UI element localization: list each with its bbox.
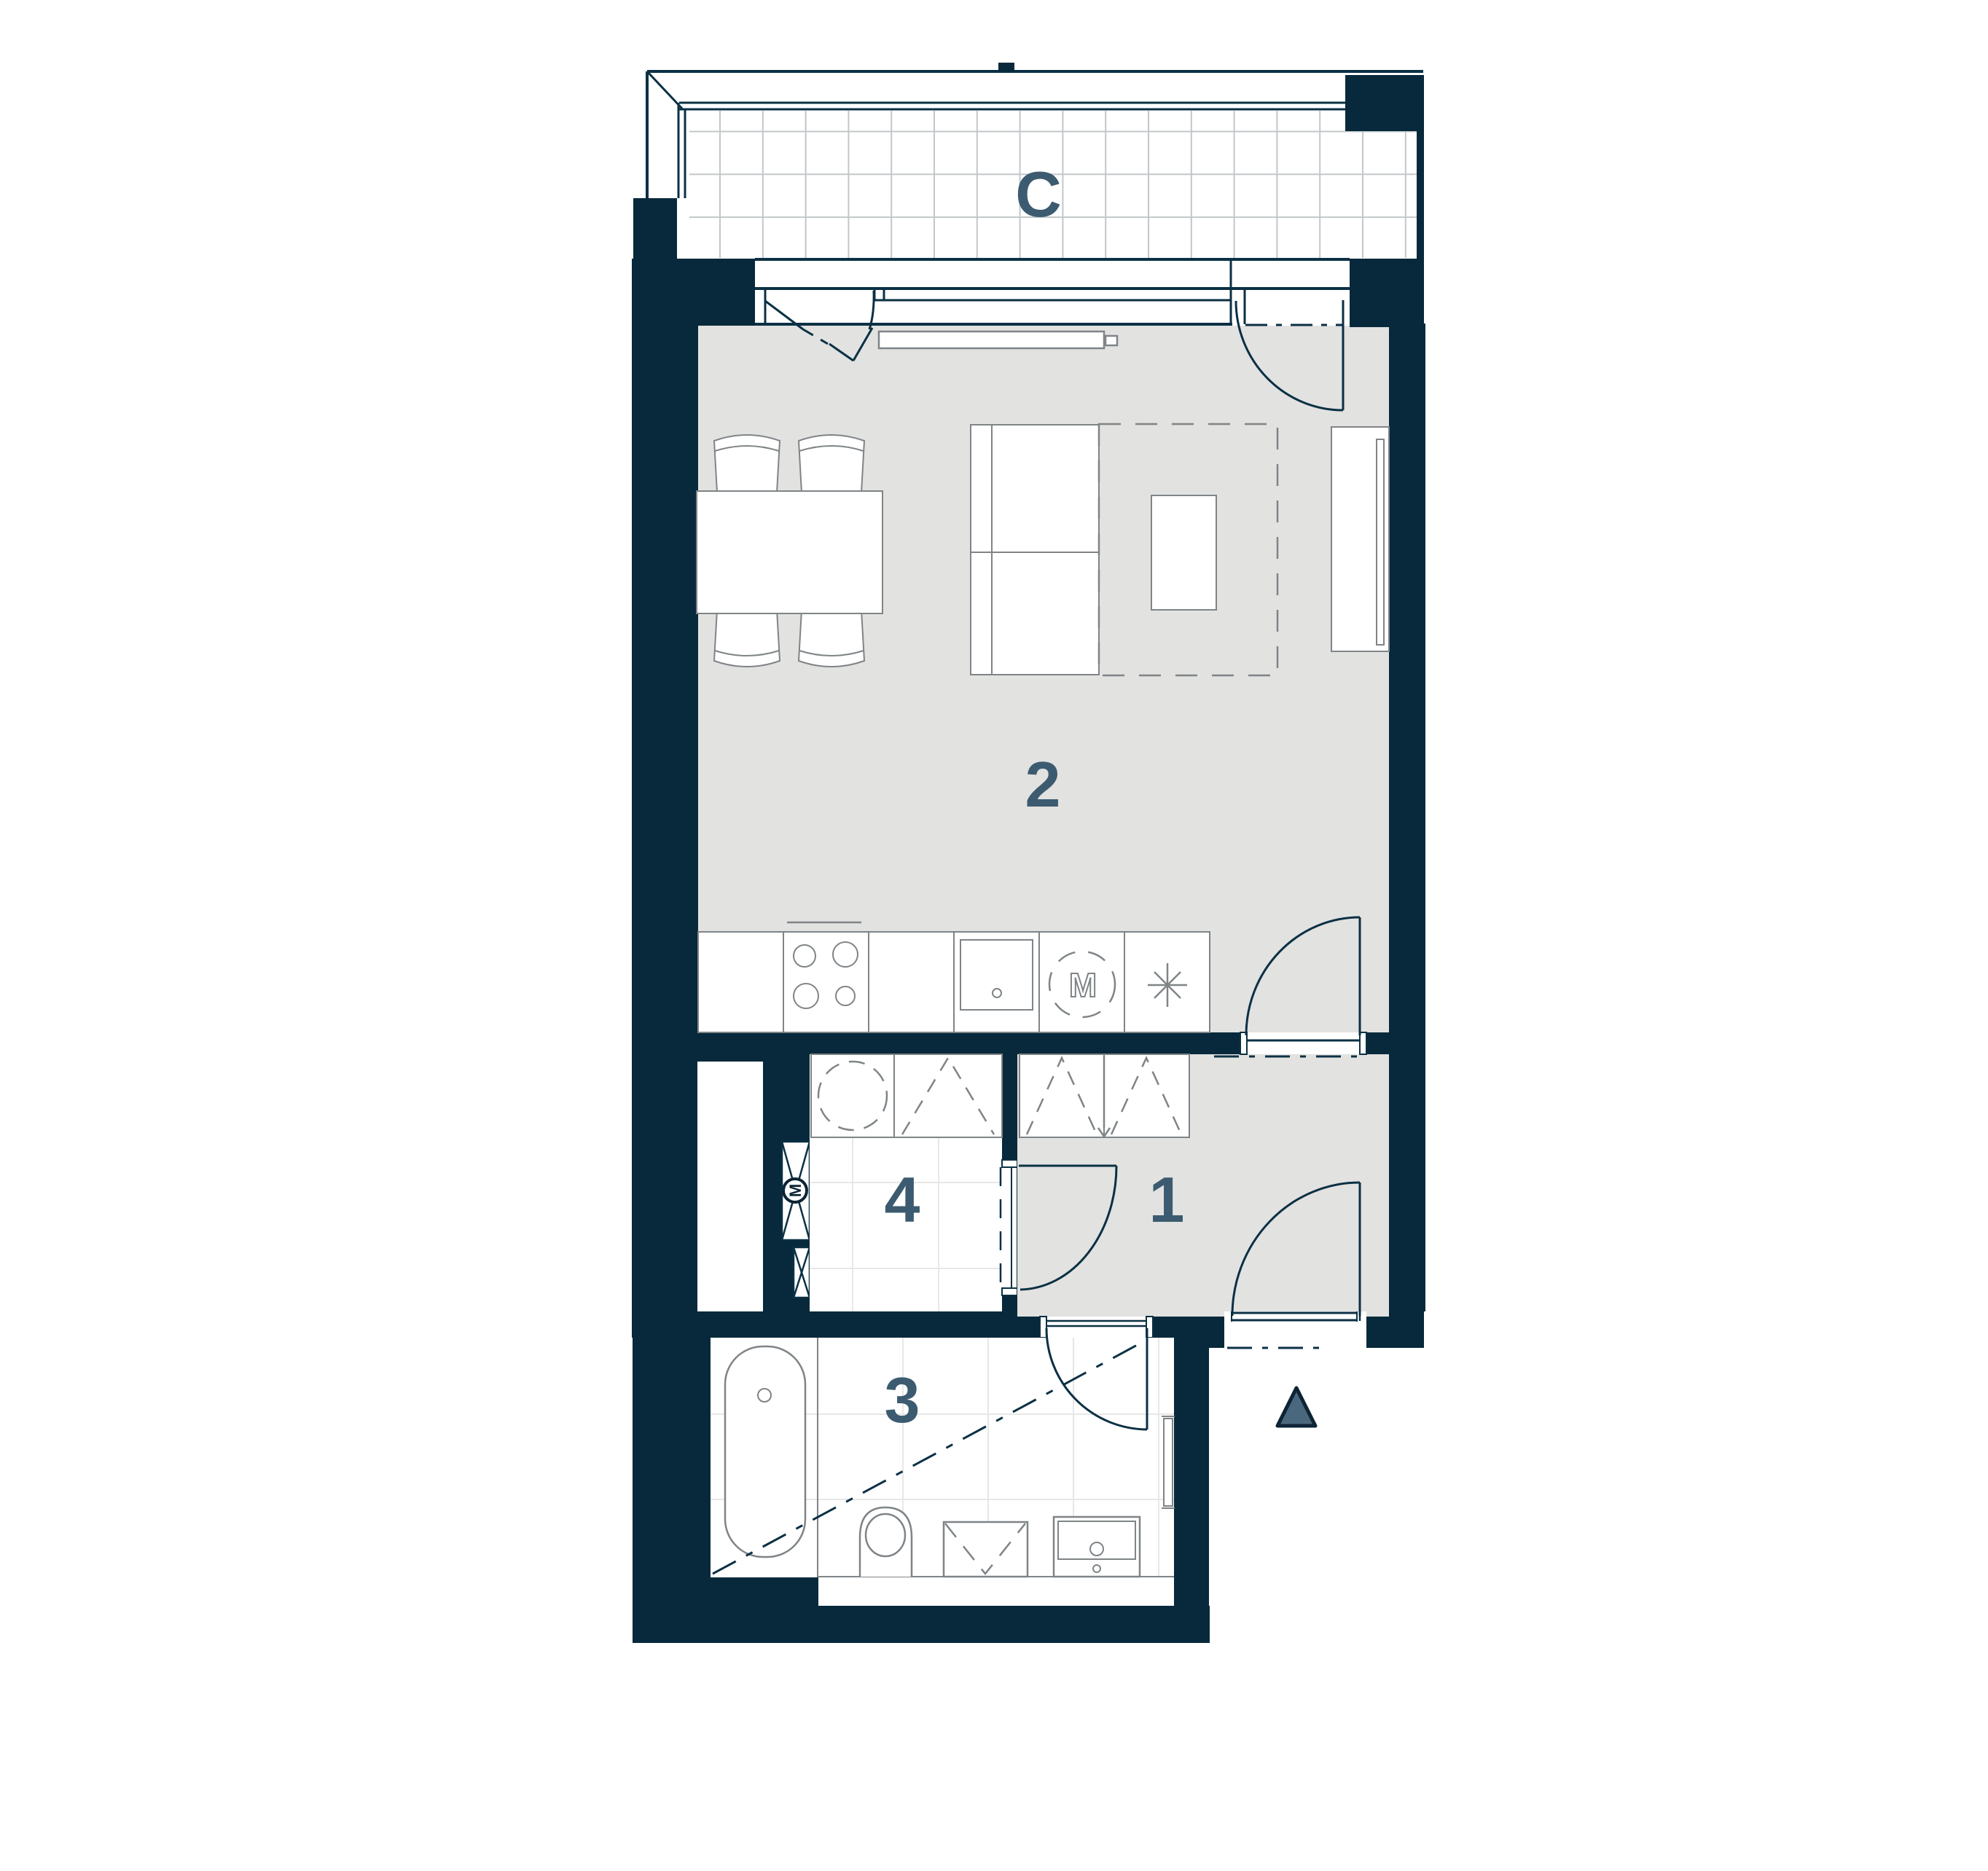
svg-text:C: C	[1015, 158, 1062, 230]
svg-text:M: M	[786, 1184, 805, 1197]
svg-text:4: 4	[885, 1164, 920, 1236]
svg-text:M: M	[1069, 966, 1097, 1004]
svg-text:3: 3	[885, 1364, 920, 1436]
svg-text:1: 1	[1149, 1164, 1185, 1236]
svg-text:2: 2	[1025, 748, 1061, 820]
